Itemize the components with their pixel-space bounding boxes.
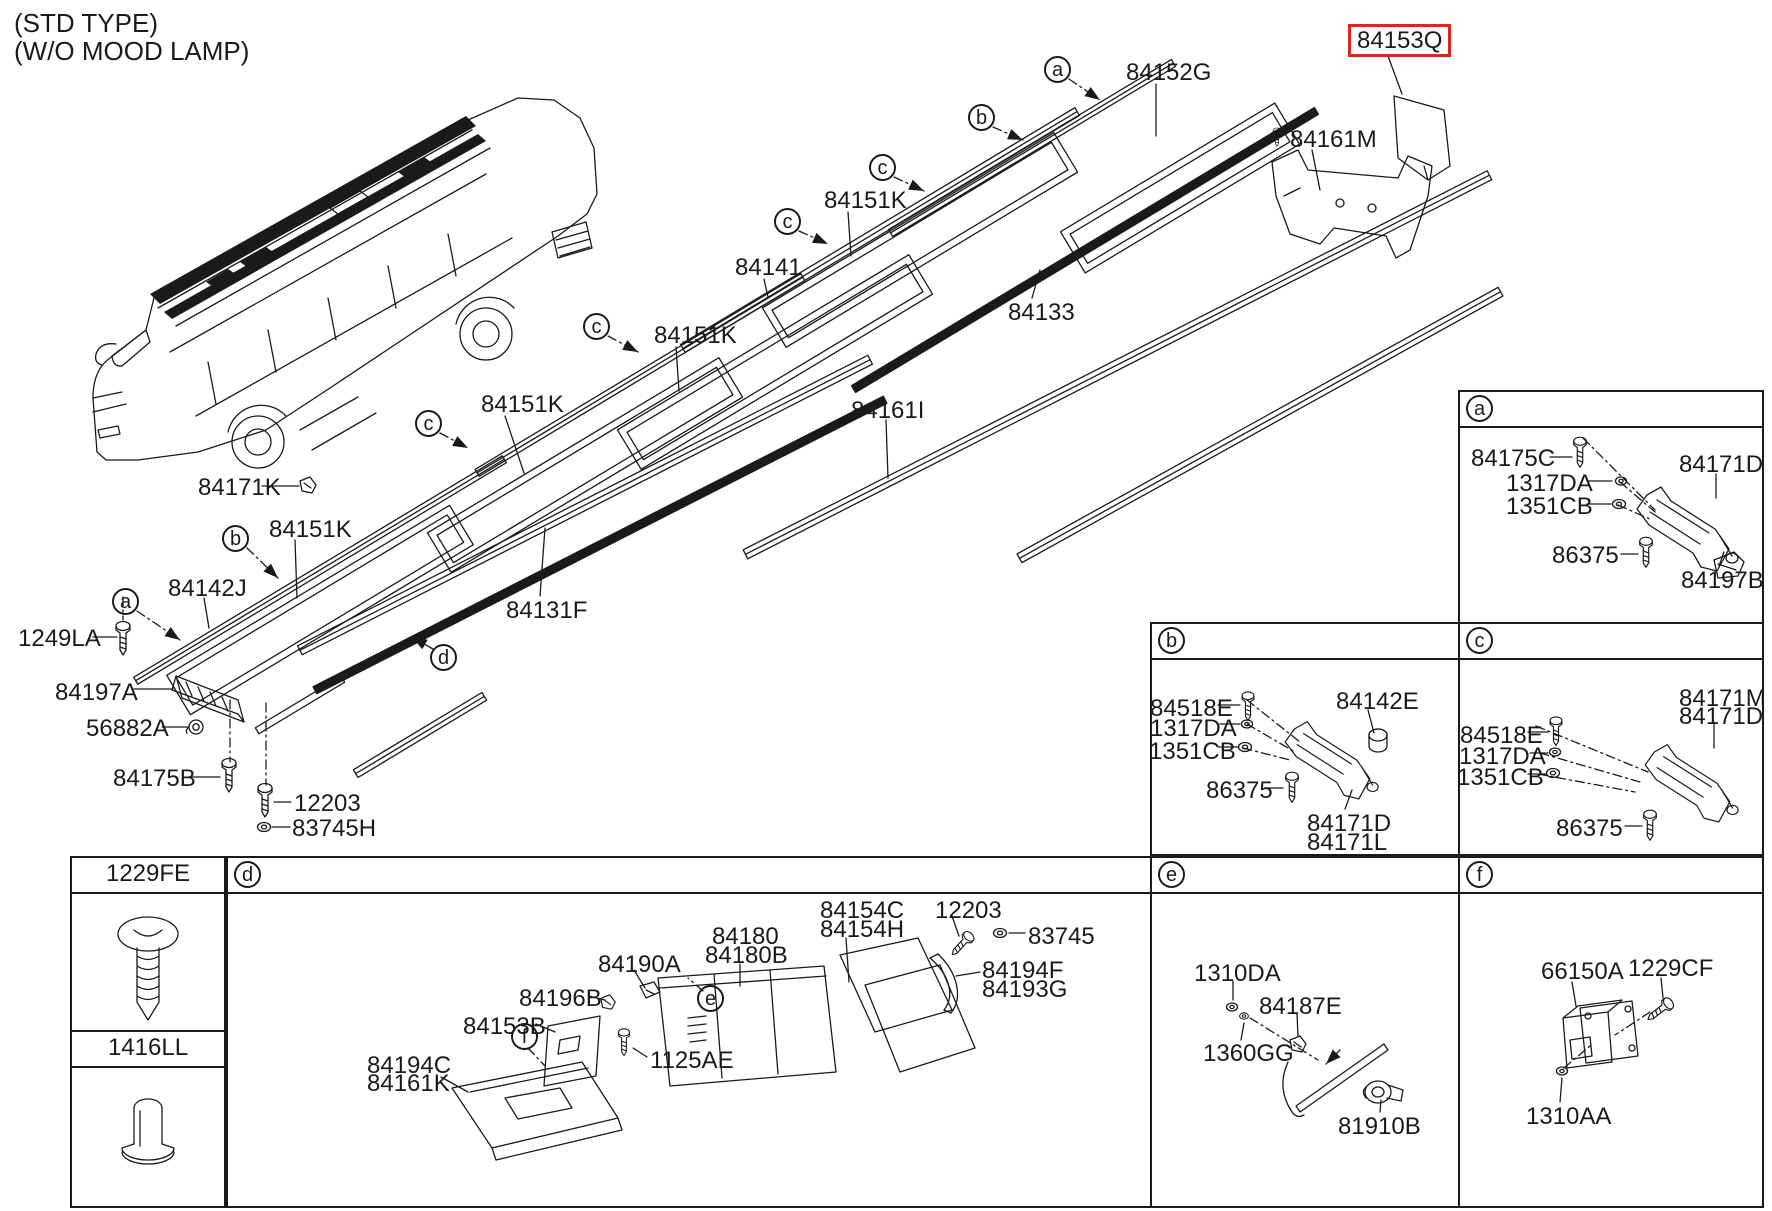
screw-icon (222, 759, 236, 793)
part-label-84141[interactable]: 84141 (735, 255, 802, 280)
detail-box-b-letter: b (1158, 627, 1185, 654)
part-label-84133[interactable]: 84133 (1008, 300, 1075, 325)
detail-box-e-header: e (1152, 858, 1458, 894)
molding-strip (353, 693, 486, 778)
detail-box-b-header: b (1152, 624, 1458, 660)
detail-box-e: e (1150, 856, 1460, 1208)
detail-box-a-letter: a (1466, 395, 1493, 422)
part-label-84151K-4[interactable]: 84151K (269, 517, 352, 542)
molding-strip (889, 60, 1176, 237)
marker-c-2: c (774, 208, 801, 235)
diagram-title-line2: (W/O MOOD LAMP) (14, 36, 249, 67)
legend-row-1416LL: 1416LL (72, 1032, 224, 1068)
molding-strip (617, 255, 932, 470)
marker-c-4: c (415, 410, 442, 437)
part-label-84171K[interactable]: 84171K (198, 475, 281, 500)
legend-table: 1229FE 1416LL (70, 856, 226, 1208)
detail-box-d-letter: d (234, 861, 261, 888)
part-label-84197A[interactable]: 84197A (55, 680, 138, 705)
diagram-title-line1: (STD TYPE) (14, 8, 158, 39)
detail-box-e-letter: e (1158, 861, 1185, 888)
part-label-56882A[interactable]: 56882A (86, 716, 169, 741)
part-84161M-bracket (1272, 150, 1432, 258)
part-label-84151K[interactable]: 84151K (824, 188, 907, 213)
marker-a: a (1044, 56, 1071, 83)
marker-b: b (968, 104, 995, 131)
washer-icon (258, 823, 271, 832)
molding-strip (852, 108, 1319, 393)
molding-strip (427, 358, 742, 573)
part-label-84152G[interactable]: 84152G (1126, 60, 1211, 85)
part-84197A-end-piece (172, 676, 244, 722)
detail-box-b: b (1150, 622, 1460, 856)
legend-row-1229FE: 1229FE (72, 858, 224, 894)
part-label-12203[interactable]: 12203 (294, 791, 361, 816)
detail-box-f-letter: f (1466, 861, 1493, 888)
clip-icon (300, 477, 316, 493)
marker-b-2: b (222, 525, 249, 552)
grommet-icon (186, 720, 203, 734)
part-label-84142J[interactable]: 84142J (168, 576, 247, 601)
detail-box-a: a (1458, 390, 1764, 624)
part-label-84151K-2[interactable]: 84151K (654, 323, 737, 348)
detail-box-c-letter: c (1466, 627, 1493, 654)
part-label-84151K-3[interactable]: 84151K (481, 392, 564, 417)
part-label-84161M[interactable]: 84161M (1290, 127, 1377, 152)
part-label-84153Q[interactable]: 84153Q (1348, 24, 1451, 57)
part-label-84161I[interactable]: 84161I (851, 398, 924, 423)
detail-box-c: c (1458, 622, 1764, 856)
detail-box-f: f (1458, 856, 1764, 1208)
molding-strip (313, 396, 887, 694)
part-label-1249LA[interactable]: 1249LA (18, 626, 101, 651)
marker-a-2: a (112, 588, 139, 615)
screw-icon (116, 622, 130, 656)
detail-box-a-header: a (1460, 392, 1762, 428)
molding-strip (1017, 287, 1503, 562)
detail-box-d-header: d (228, 858, 1150, 894)
part-label-83745H[interactable]: 83745H (292, 816, 376, 841)
marker-c: c (869, 154, 896, 181)
detail-box-d: d (226, 856, 1152, 1208)
detail-box-f-header: f (1460, 858, 1762, 894)
screw-icon (258, 784, 272, 818)
detail-box-c-header: c (1460, 624, 1762, 660)
parts-diagram-canvas: (STD TYPE) (W/O MOOD LAMP) 84153Q84152G8… (0, 0, 1772, 1211)
part-label-84175B[interactable]: 84175B (113, 766, 196, 791)
marker-d: d (430, 644, 457, 671)
marker-c-3: c (583, 313, 610, 340)
part-label-84131F[interactable]: 84131F (506, 598, 587, 623)
